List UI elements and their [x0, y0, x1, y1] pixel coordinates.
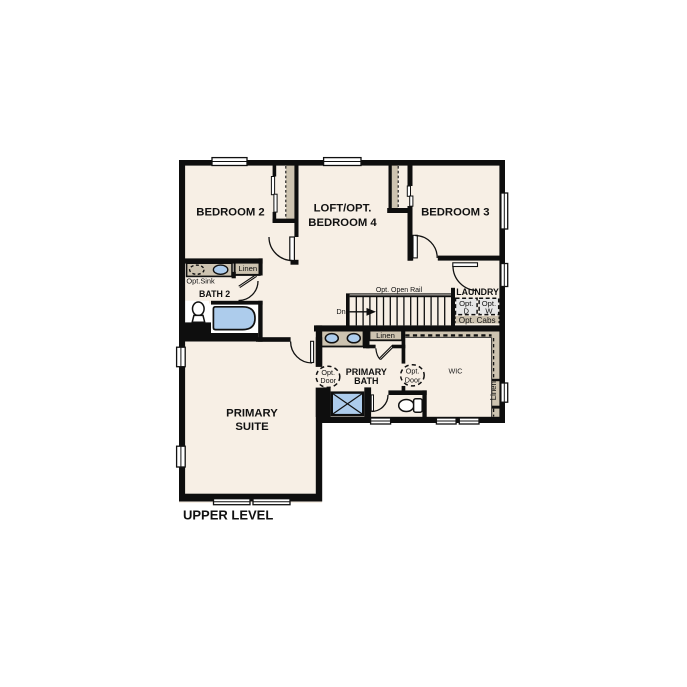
svg-text:Linen: Linen — [489, 381, 498, 400]
svg-text:Opt.Sink: Opt.Sink — [186, 276, 215, 285]
svg-text:BATH 2: BATH 2 — [199, 289, 230, 299]
svg-text:BEDROOM 4: BEDROOM 4 — [308, 217, 377, 229]
svg-text:PRIMARY: PRIMARY — [226, 407, 278, 419]
svg-text:Opt. Cabs: Opt. Cabs — [459, 316, 496, 325]
svg-text:Dn: Dn — [336, 307, 345, 316]
svg-text:Door: Door — [320, 376, 336, 385]
svg-text:BEDROOM 2: BEDROOM 2 — [196, 206, 264, 218]
svg-text:UPPER LEVEL: UPPER LEVEL — [183, 508, 273, 523]
svg-text:W: W — [485, 306, 493, 315]
svg-text:SUITE: SUITE — [235, 421, 269, 433]
svg-text:Opt.: Opt. — [406, 366, 420, 375]
svg-text:Linen: Linen — [238, 264, 257, 273]
svg-text:Linen: Linen — [376, 331, 395, 340]
svg-text:LAUNDRY: LAUNDRY — [456, 287, 499, 297]
svg-text:LOFT/OPT.: LOFT/OPT. — [314, 202, 372, 214]
svg-text:D: D — [464, 306, 470, 315]
svg-text:BEDROOM 3: BEDROOM 3 — [421, 206, 489, 218]
svg-text:Opt. Open Rail: Opt. Open Rail — [376, 287, 423, 294]
svg-text:Door: Door — [405, 376, 421, 385]
svg-text:WIC: WIC — [449, 366, 463, 375]
svg-text:BATH: BATH — [354, 376, 378, 386]
